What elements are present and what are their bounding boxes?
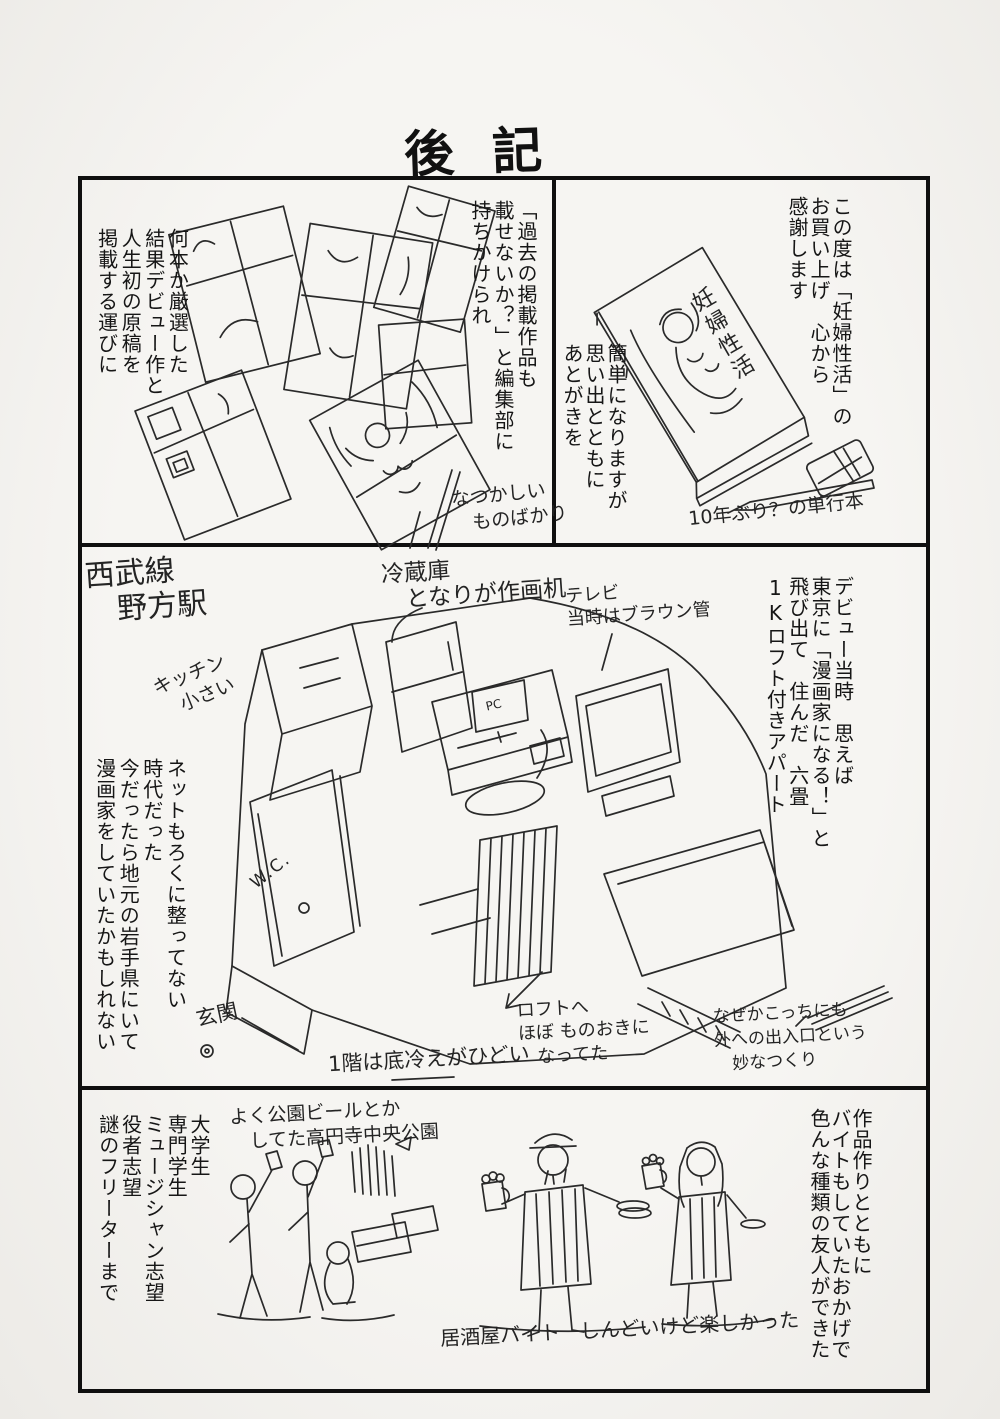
exit-note: なぜかこっちにも 外への出入口という 妙なつくり	[712, 998, 869, 1077]
thanks-text: この度は「妊婦性活」の お買い上げ 心から 感謝します	[786, 196, 852, 496]
loft-note: ロフトへ ほぼ ものおきに なってた	[516, 993, 651, 1070]
selection-result-text: 何本か厳選した 結果デビュー作と 人生初の原稿を 掲載する運びに	[94, 228, 188, 448]
sketch-manga-pages	[135, 186, 495, 550]
editor-offer-text: 「過去の掲載作品も 載せないか？」と編集部に 持ちかけられ	[468, 200, 537, 500]
station-note: 西武線 野方駅	[84, 552, 209, 629]
sketch-park-group	[218, 1137, 438, 1320]
debut-memory-text: デビュー当時 思えば 東京に「漫画家になる！」と 飛び出て 住んだ 六畳 1Kロ…	[764, 576, 854, 886]
friends-text: 作品作りとともに バイトもしていたおかげで 色んな種類の友人ができた	[808, 1108, 871, 1408]
tv-note: テレビ 当時はブラウン管	[565, 575, 712, 632]
afterword-page: 後記	[0, 0, 1000, 1419]
afterword-intro-text: 簡単になりますが 思い出とともに あとがきを	[561, 343, 627, 543]
internet-era-text: ネットもろくに整ってない 時代だった 今だったら地元の岩手県にいて 漫画家をして…	[92, 758, 186, 1088]
friend-types-text: 大学生 専門学生 ミュージシャン志望 役者志望 謎のフリーターまで	[96, 1114, 210, 1354]
page-title: 後記	[403, 109, 581, 187]
sketch-izakaya-staff	[480, 1134, 774, 1336]
